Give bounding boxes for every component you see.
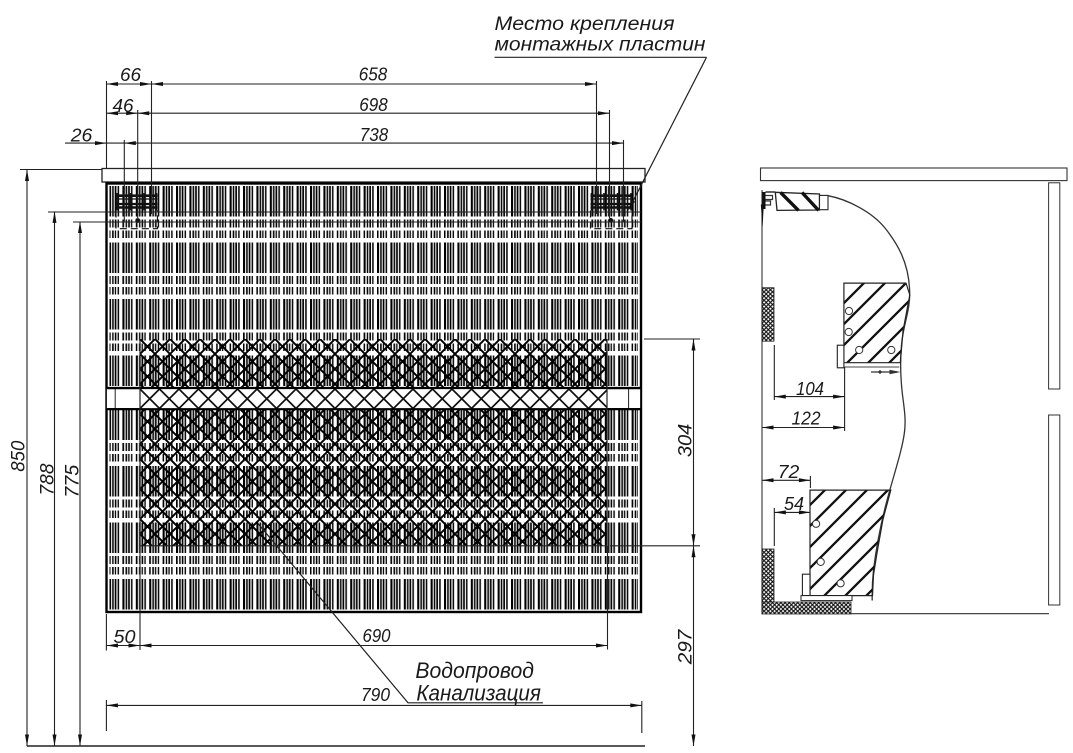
svg-text:788: 788 [37, 463, 58, 495]
svg-text:Канализация: Канализация [416, 681, 541, 706]
svg-text:монтажных пластин: монтажных пластин [495, 34, 706, 56]
svg-text:850: 850 [9, 440, 30, 471]
svg-text:658: 658 [359, 64, 388, 85]
svg-text:790: 790 [361, 684, 391, 705]
svg-text:26: 26 [70, 124, 93, 145]
svg-text:738: 738 [360, 124, 389, 145]
svg-text:Водопровод: Водопровод [415, 658, 534, 683]
svg-text:72: 72 [778, 461, 800, 482]
svg-text:775: 775 [62, 464, 83, 497]
svg-text:66: 66 [120, 64, 142, 85]
svg-text:690: 690 [363, 625, 392, 646]
svg-text:50: 50 [114, 626, 137, 647]
svg-text:698: 698 [359, 94, 388, 115]
svg-text:104: 104 [796, 378, 824, 399]
svg-text:304: 304 [676, 424, 697, 458]
svg-text:297: 297 [676, 628, 697, 665]
svg-text:46: 46 [113, 95, 135, 116]
svg-text:122: 122 [792, 407, 822, 428]
svg-text:54: 54 [784, 493, 804, 514]
svg-text:Место крепления: Место крепления [495, 13, 676, 35]
